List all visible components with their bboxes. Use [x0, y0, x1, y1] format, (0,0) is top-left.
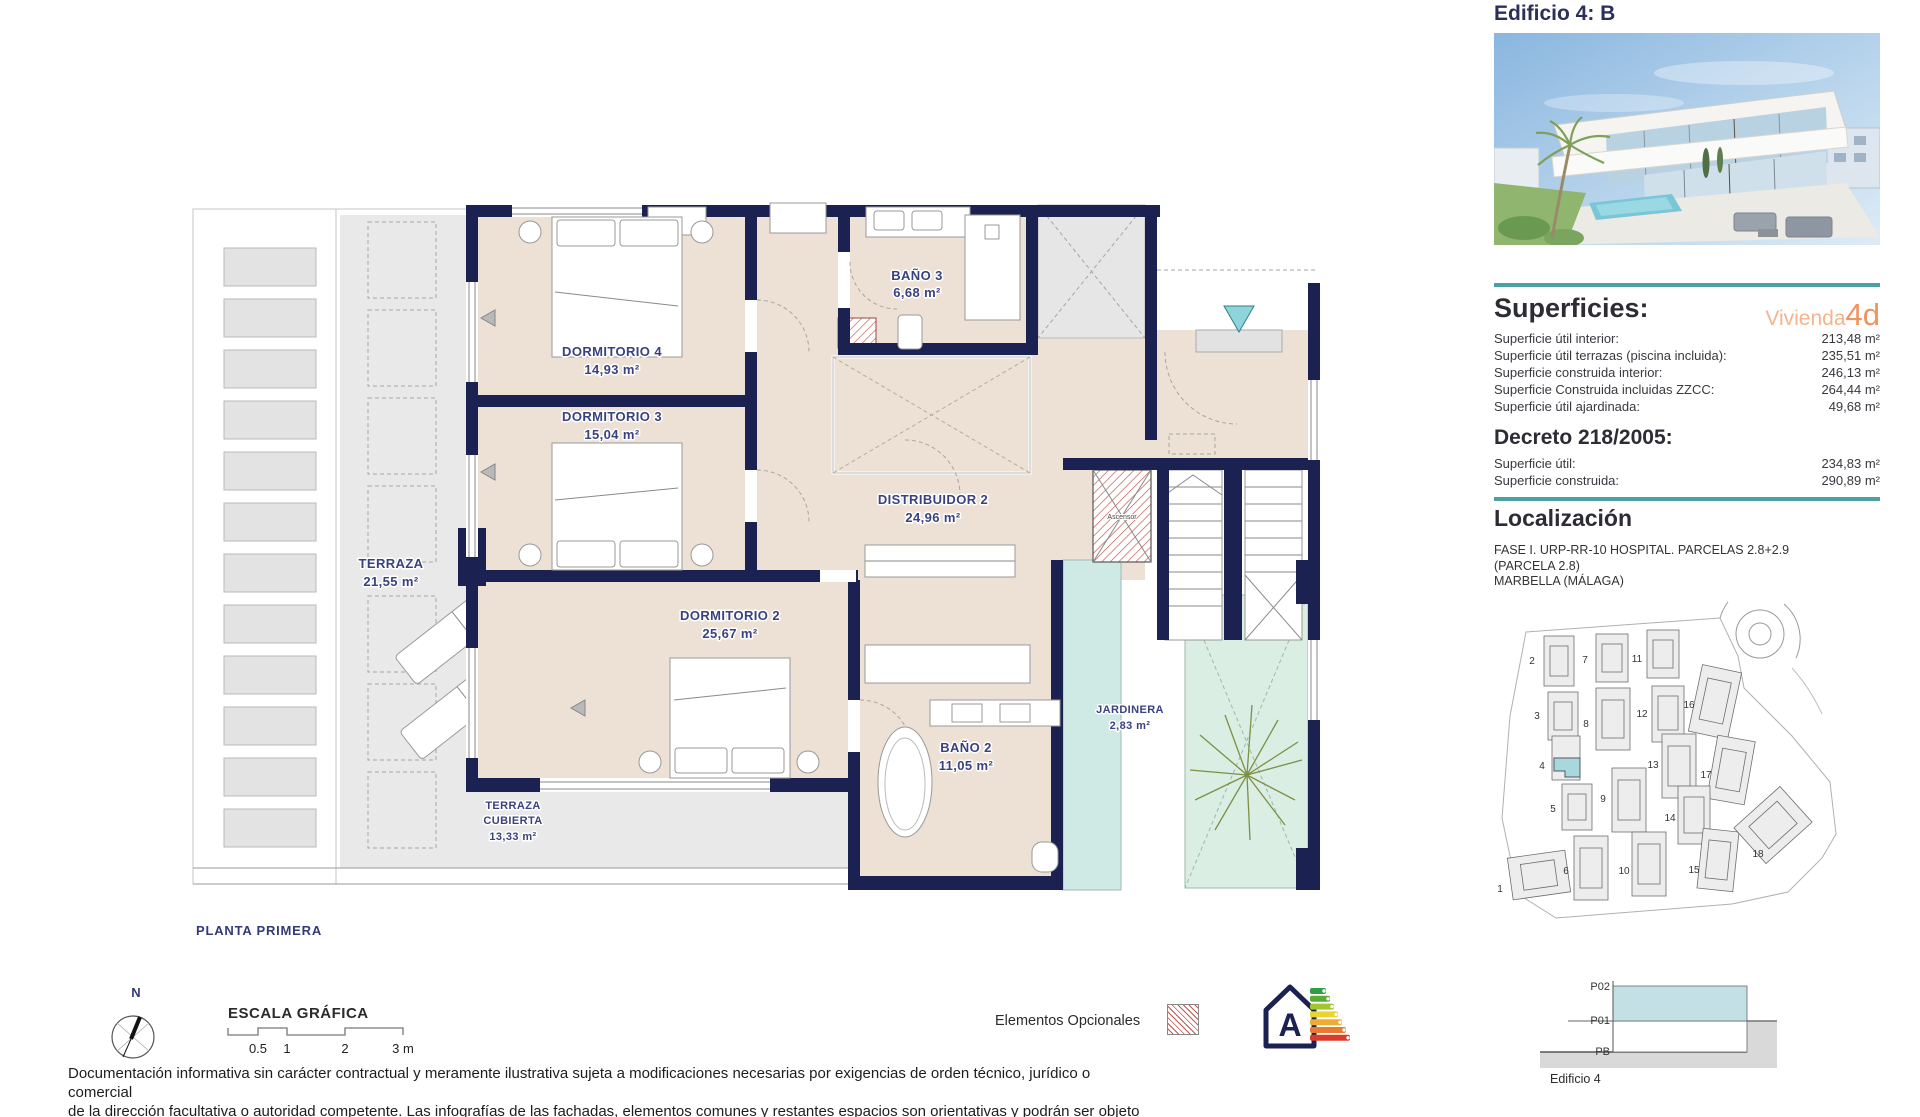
room-area: 21,55 m²: [363, 574, 419, 589]
superficies-table: Superficie útil interior: 213,48 m² Supe…: [1494, 331, 1880, 416]
entrance-area: [1157, 205, 1320, 352]
site-number: 3: [1534, 711, 1540, 722]
room-label: DISTRIBUIDOR 2: [878, 492, 988, 507]
room-area: 14,93 m²: [584, 362, 640, 377]
site-number: 18: [1752, 849, 1764, 860]
vivienda-label: Vivienda: [1765, 307, 1845, 330]
surface-label: Superficie construida interior:: [1494, 365, 1662, 382]
site-number: 10: [1618, 866, 1630, 877]
site-number: 6: [1563, 866, 1569, 877]
table-row: Superficie útil ajardinada: 49,68 m²: [1494, 399, 1880, 416]
surface-label: Superficie útil interior:: [1494, 331, 1619, 348]
rooflight-box: [833, 357, 1030, 473]
site-number: 17: [1700, 770, 1712, 781]
room-area: 6,68 m²: [893, 285, 941, 300]
page: H: [0, 0, 1920, 1117]
superficies-heading: Superficies:: [1494, 293, 1649, 324]
room-area: 25,67 m²: [702, 626, 758, 641]
site-number: 14: [1664, 813, 1676, 824]
decreto-heading: Decreto 218/2005:: [1494, 426, 1673, 450]
disclaimer-line: de la dirección facultativa o autoridad …: [68, 1102, 1153, 1117]
site-number: 8: [1583, 719, 1589, 730]
room-area: 15,04 m²: [584, 427, 640, 442]
room-area: 13,33 m²: [489, 831, 536, 843]
table-row: Superficie construida: 290,89 m²: [1494, 473, 1880, 490]
table-row: Superficie útil terrazas (piscina inclui…: [1494, 348, 1880, 365]
vivienda-code: 4d: [1846, 297, 1880, 332]
site-plan-map: 1 2 3 4 5 6 7 8 9 10 11 12 13 14 15 16 1…: [1492, 596, 1884, 968]
scale-tick: 0.5: [249, 1041, 267, 1056]
site-number: 7: [1582, 655, 1588, 666]
scale-bar: ESCALA GRÁFICA 0.5 1 2 3 m: [228, 1005, 414, 1056]
site-number: 9: [1600, 794, 1606, 805]
divider: [1494, 283, 1880, 287]
scale-tick: 1: [283, 1041, 290, 1056]
compass-icon: N: [112, 985, 154, 1058]
surface-label: Superficie construida:: [1494, 473, 1619, 490]
room-label: BAÑO 2: [940, 740, 992, 755]
floor-plan: H: [0, 0, 1470, 1117]
room-area: 11,05 m²: [939, 758, 994, 773]
site-number: 2: [1529, 656, 1535, 667]
room-area: 24,96 m²: [905, 510, 961, 525]
surface-value: 290,89 m²: [1821, 473, 1880, 490]
site-number: 1: [1497, 884, 1503, 895]
table-row: Superficie Construida incluidas ZZCC: 26…: [1494, 382, 1880, 399]
section-level-label: PB: [1595, 1046, 1610, 1058]
surface-value: 246,13 m²: [1821, 365, 1880, 382]
compass-north-label: N: [131, 985, 140, 1000]
address-line: (PARCELA 2.8): [1494, 559, 1789, 575]
site-number: 16: [1683, 700, 1695, 711]
divider: [1494, 497, 1880, 501]
section-level-label: P02: [1590, 981, 1610, 993]
room-area: 2,83 m²: [1110, 720, 1151, 732]
elevator: Ascensor: [1093, 470, 1151, 562]
localizacion-heading: Localización: [1494, 505, 1632, 532]
section-caption: Edificio 4: [1550, 1072, 1601, 1086]
table-row: Superficie construida interior: 246,13 m…: [1494, 365, 1880, 382]
site-buildings: [1507, 630, 1812, 900]
energy-letter: A: [1278, 1007, 1301, 1043]
surface-label: Superficie útil terrazas (piscina inclui…: [1494, 348, 1727, 365]
energy-bars: [1310, 988, 1350, 1041]
room-label: TERRAZA: [485, 800, 540, 812]
address-line: FASE I. URP-RR-10 HOSPITAL. PARCELAS 2.8…: [1494, 543, 1789, 559]
room-label: TERRAZA: [359, 556, 424, 571]
building-title: Edificio 4: B: [1494, 2, 1615, 26]
disclaimer: Documentación informativa sin carácter c…: [68, 1064, 1153, 1117]
building-section-diagram: P02 P01 PB: [1540, 973, 1880, 1069]
site-number: 11: [1632, 654, 1643, 665]
section-level-label: P01: [1590, 1015, 1610, 1027]
room-label: JARDINERA: [1096, 704, 1164, 716]
decreto-table: Superficie útil: 234,83 m² Superficie co…: [1494, 456, 1880, 490]
scale-tick: 3 m: [392, 1041, 414, 1056]
disclaimer-line: Documentación informativa sin carácter c…: [68, 1064, 1153, 1102]
scale-bar-title: ESCALA GRÁFICA: [228, 1005, 369, 1022]
site-number: 5: [1550, 804, 1556, 815]
surface-label: Superficie útil ajardinada:: [1494, 399, 1640, 416]
site-number: 12: [1636, 709, 1648, 720]
optional-elements-label: Elementos Opcionales: [995, 1013, 1140, 1029]
table-row: Superficie útil interior: 213,48 m²: [1494, 331, 1880, 348]
surface-value: 213,48 m²: [1821, 331, 1880, 348]
room-label: BAÑO 3: [891, 268, 943, 283]
plan-title: PLANTA PRIMERA: [196, 923, 322, 938]
site-number: 13: [1647, 760, 1659, 771]
localizacion-address: FASE I. URP-RR-10 HOSPITAL. PARCELAS 2.8…: [1494, 543, 1789, 590]
site-number: 4: [1539, 761, 1545, 772]
address-line: MARBELLA (MÁLAGA): [1494, 574, 1789, 590]
void-box: [1038, 205, 1145, 338]
optional-elements-swatch: [1167, 1004, 1199, 1035]
surface-value: 234,83 m²: [1821, 456, 1880, 473]
room-label: DORMITORIO 4: [562, 344, 662, 359]
table-row: Superficie útil: 234,83 m²: [1494, 456, 1880, 473]
surface-value: 49,68 m²: [1829, 399, 1880, 416]
elevator-label: Ascensor: [1107, 514, 1137, 521]
room-label: CUBIERTA: [483, 815, 542, 827]
energy-rating-icon: A: [1256, 978, 1356, 1054]
vivienda-badge: Vivienda4d: [1690, 297, 1880, 333]
site-number: 15: [1688, 865, 1700, 876]
surface-value: 235,51 m²: [1821, 348, 1880, 365]
surface-label: Superficie útil:: [1494, 456, 1576, 473]
villa-rendering-image: [1494, 33, 1880, 245]
surface-value: 264,44 m²: [1821, 382, 1880, 399]
room-label: DORMITORIO 3: [562, 409, 662, 424]
scale-tick: 2: [341, 1041, 348, 1056]
surface-label: Superficie Construida incluidas ZZCC:: [1494, 382, 1714, 399]
room-label: DORMITORIO 2: [680, 608, 780, 623]
